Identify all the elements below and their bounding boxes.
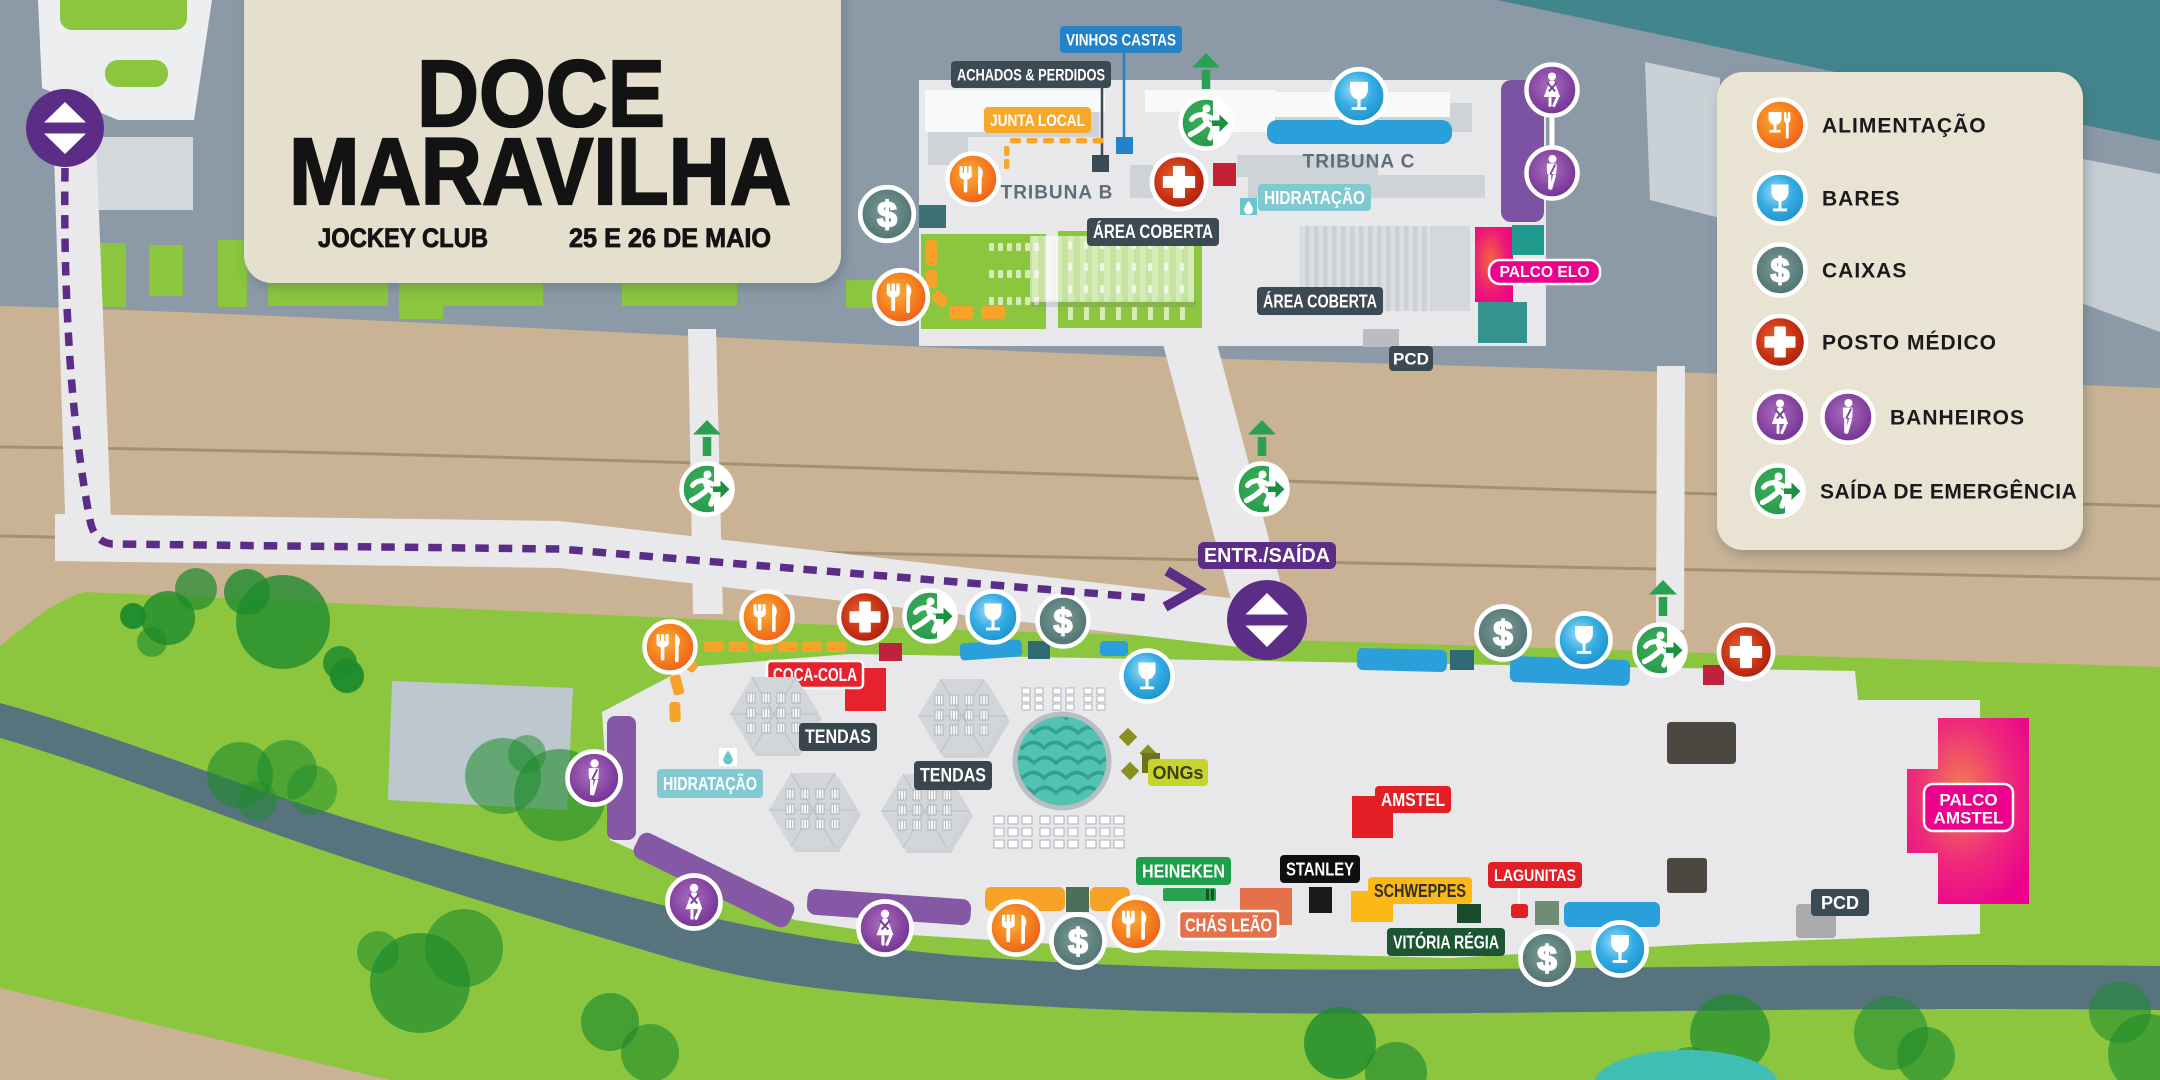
svg-text:VINHOS CASTAS: VINHOS CASTAS [1066,31,1176,50]
svg-text:LAGUNITAS: LAGUNITAS [1494,866,1576,885]
svg-text:CHÁS LEÃO: CHÁS LEÃO [1185,915,1272,936]
svg-text:BARES: BARES [1822,188,1901,211]
svg-text:HIDRATAÇÃO: HIDRATAÇÃO [663,773,757,794]
svg-text:HIDRATAÇÃO: HIDRATAÇÃO [1264,187,1365,208]
svg-text:POSTO MÉDICO: POSTO MÉDICO [1822,332,1997,355]
svg-text:TENDAS: TENDAS [805,727,871,748]
svg-text:ACHADOS & PERDIDOS: ACHADOS & PERDIDOS [957,66,1105,85]
svg-text:ALIMENTAÇÃO: ALIMENTAÇÃO [1822,115,1987,138]
svg-text:PALCO ELO: PALCO ELO [1500,264,1590,281]
svg-text:ENTR./SAÍDA: ENTR./SAÍDA [1204,544,1330,567]
svg-text:PALCO: PALCO [1939,791,1997,810]
svg-text:STANLEY: STANLEY [1286,860,1354,880]
svg-text:JUNTA LOCAL: JUNTA LOCAL [990,111,1085,130]
svg-text:SCHWEPPES: SCHWEPPES [1374,881,1466,901]
svg-text:HEINEKEN: HEINEKEN [1142,862,1225,882]
svg-text:AMSTEL: AMSTEL [1381,790,1445,810]
svg-text:BANHEIROS: BANHEIROS [1890,407,2025,430]
svg-text:ÁREA COBERTA: ÁREA COBERTA [1093,221,1213,243]
svg-text:PCD: PCD [1393,350,1429,369]
svg-text:SAÍDA DE EMERGÊNCIA: SAÍDA DE EMERGÊNCIA [1820,480,2077,504]
svg-text:ÁREA COBERTA: ÁREA COBERTA [1263,291,1377,312]
svg-text:AMSTEL: AMSTEL [1934,809,2004,828]
svg-text:TRIBUNA B: TRIBUNA B [1001,183,1114,204]
svg-text:TRIBUNA C: TRIBUNA C [1303,152,1416,173]
svg-text:MARAVILHA: MARAVILHA [289,119,791,225]
svg-text:25 E 26 DE MAIO: 25 E 26 DE MAIO [569,223,771,253]
svg-text:JOCKEY CLUB: JOCKEY CLUB [318,223,488,253]
svg-text:PCD: PCD [1821,893,1859,913]
svg-text:TENDAS: TENDAS [920,766,986,787]
svg-text:CAIXAS: CAIXAS [1822,260,1907,283]
svg-text:ONGs: ONGs [1152,763,1203,783]
svg-text:VITÓRIA RÉGIA: VITÓRIA RÉGIA [1393,932,1499,953]
